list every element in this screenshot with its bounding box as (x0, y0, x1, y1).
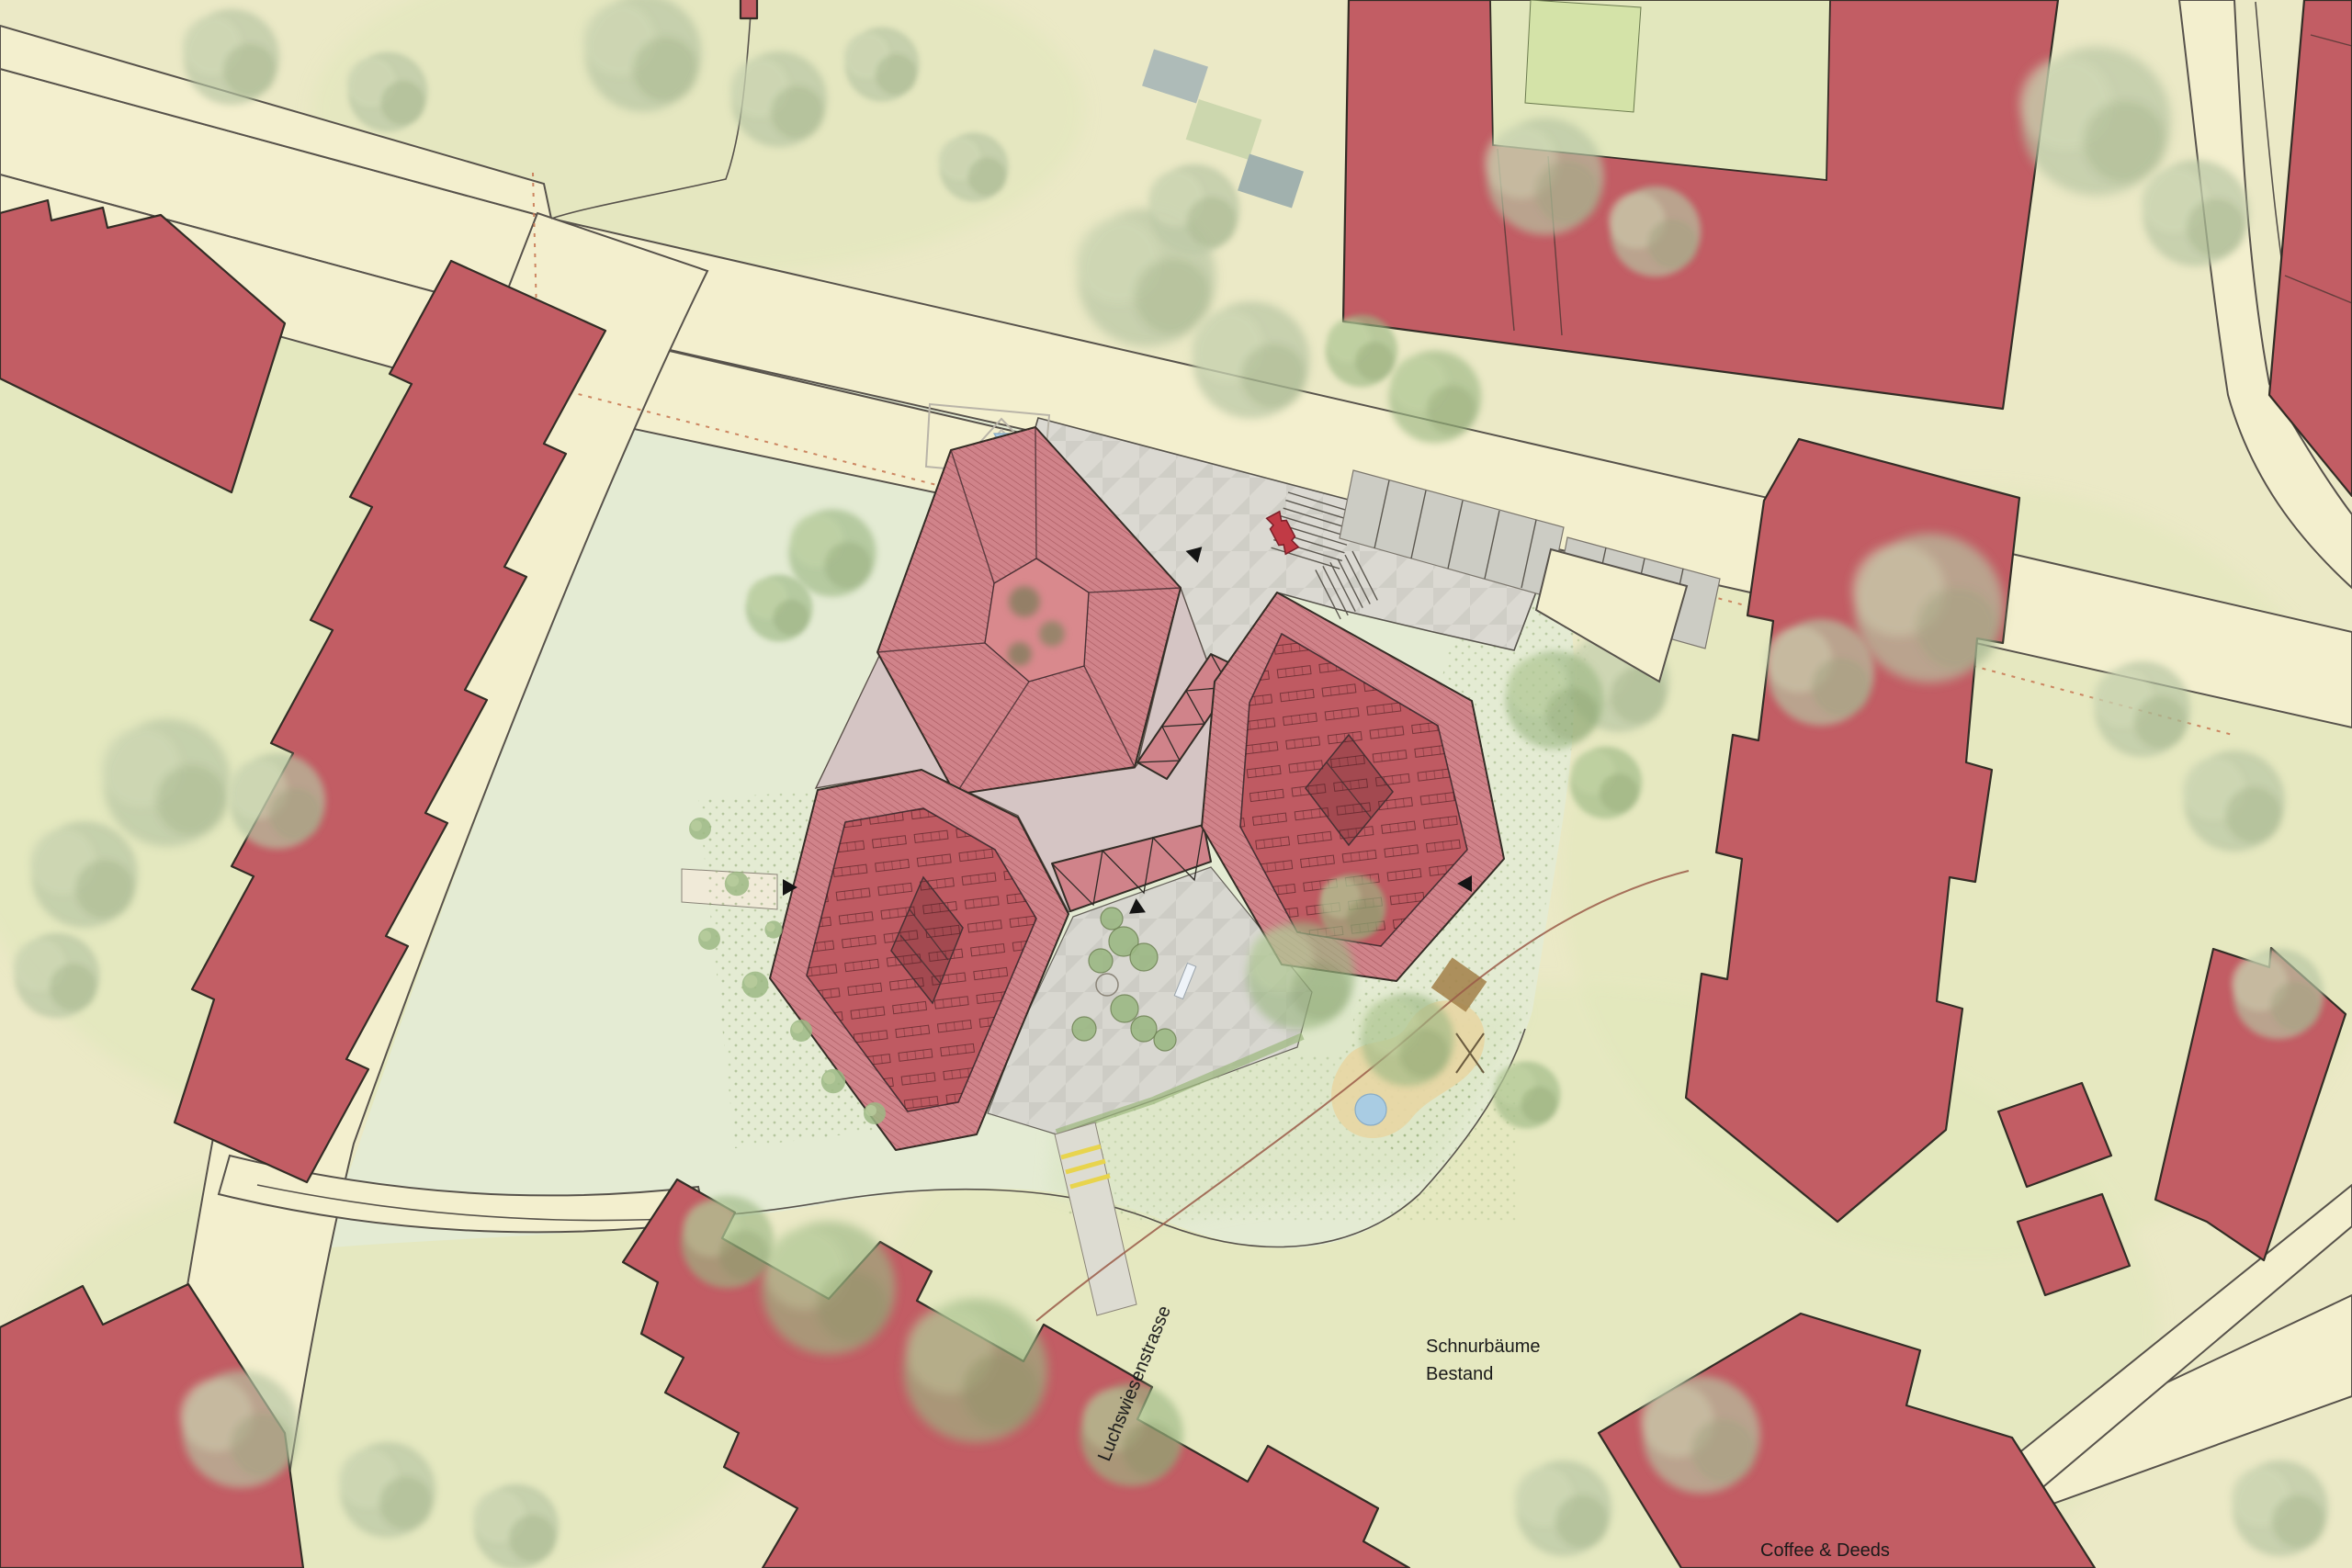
pond (1355, 1094, 1386, 1125)
trees-note-line1: Schnurbäume (1426, 1337, 1541, 1357)
u-courtyard-green-square (1525, 0, 1641, 112)
site-plan-canvas: Luchswiesenstrasse Schnurbäume Bestand C… (0, 0, 2352, 1568)
site-plan-drawing: Luchswiesenstrasse Schnurbäume Bestand C… (0, 0, 2352, 1568)
building-fragment-top (741, 0, 757, 18)
trees-note-line2: Bestand (1426, 1364, 1493, 1384)
cafe-label: Coffee & Deeds (1760, 1540, 1890, 1561)
